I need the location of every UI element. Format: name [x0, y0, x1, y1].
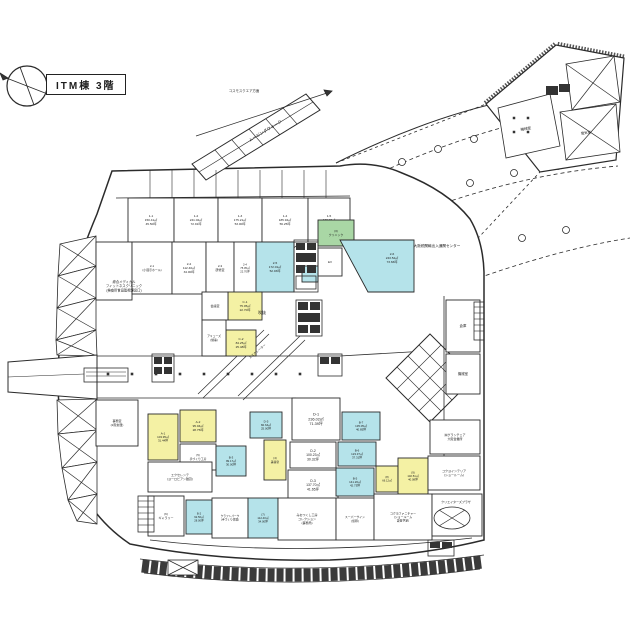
bridge-arrowhead	[324, 90, 332, 96]
deck-column	[563, 227, 570, 234]
core-cell	[298, 313, 320, 322]
column-dots	[203, 373, 206, 376]
deck-column	[399, 159, 406, 166]
column-dots	[131, 373, 134, 376]
floorplan-page: 1-1150.41㎡45.50坪1-2241.02㎡72.91坪1-3175.2…	[0, 0, 630, 630]
core-cell	[298, 302, 308, 310]
column-dots	[251, 373, 254, 376]
annex-dark-room	[559, 84, 570, 92]
core-cell	[296, 253, 316, 262]
core-cell	[310, 325, 320, 333]
core-cell	[310, 302, 320, 310]
core-cell	[320, 357, 329, 364]
deck-column	[435, 146, 442, 153]
customs-center-label: 大阪税関輸出入通関センター	[414, 243, 461, 248]
creators-plaza-label: クリエイターズプラザ	[441, 499, 471, 504]
floor-title: ITM棟 3階	[56, 81, 116, 92]
core-cell	[331, 357, 340, 364]
core-cell	[307, 243, 316, 250]
room-craft-park-label: クラフトパーク(手づくり体験)	[221, 514, 240, 521]
core-cell	[298, 325, 308, 333]
room-ev-hall-label: EV	[328, 260, 332, 264]
deck-column	[467, 180, 474, 187]
annex-dots	[527, 117, 530, 120]
annex-dots	[513, 131, 516, 134]
bridge-destination-label: コスモスクエア方面	[229, 88, 260, 93]
core-cell	[307, 265, 316, 273]
room-storage-east-label: 倉庫	[460, 323, 467, 328]
core-cell	[442, 542, 452, 548]
annex-dark-room	[546, 86, 558, 95]
deck-column	[471, 136, 478, 143]
annex-dots	[513, 117, 516, 120]
void-label: 吹抜	[258, 309, 266, 315]
column-dots	[275, 373, 278, 376]
core-cell	[296, 243, 305, 250]
lattice-panel	[58, 430, 97, 468]
column-dots	[179, 373, 182, 376]
core-cell	[430, 542, 440, 548]
core-cell	[296, 265, 305, 273]
north-arrow-head	[0, 73, 8, 80]
room-kokuyo-interior-label: コクヨインテリア(ショールーム)	[442, 468, 466, 477]
floor-title-box: ITM棟 3階	[46, 74, 126, 95]
column-dots	[299, 373, 302, 376]
core-cell	[154, 357, 162, 364]
deck-column	[519, 235, 526, 242]
core-cell	[164, 367, 172, 374]
core-cell	[154, 367, 162, 374]
room-sw-office-label: 事務室(2階倉庫)	[111, 418, 124, 427]
annex-dots	[527, 131, 530, 134]
room-machine-east-label: 機械室	[458, 371, 469, 376]
fan-radial-dash	[336, 104, 486, 163]
room-granchair-label: ㈱グランチェア大阪営業所	[444, 432, 465, 441]
room-meeting-label: 会議室	[210, 303, 219, 308]
core-cell	[164, 357, 172, 364]
column-dots	[107, 373, 110, 376]
deck-column	[511, 170, 518, 177]
